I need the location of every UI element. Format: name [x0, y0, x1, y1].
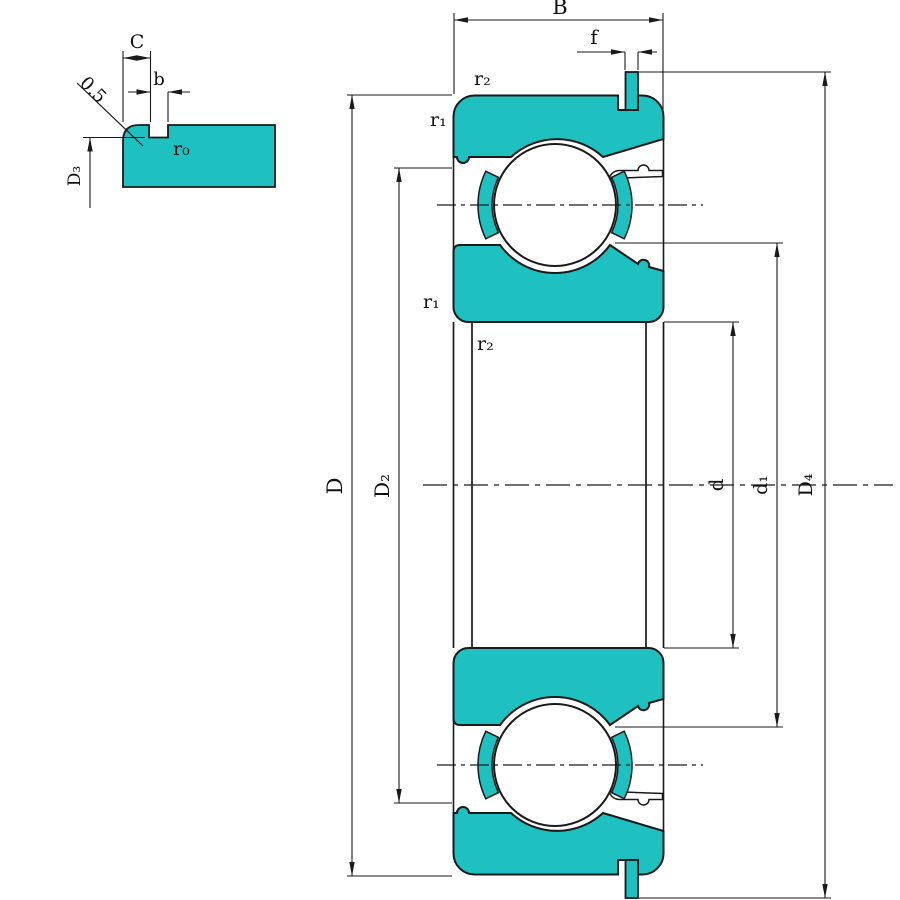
detail-part-section — [123, 125, 275, 187]
dim-f-label: f — [590, 25, 599, 49]
dim-D-label: D — [323, 478, 347, 495]
r2-bore-label: r₂ — [477, 333, 494, 355]
r1-mid-label: r₁ — [423, 291, 440, 313]
dim-b-label: b — [153, 69, 165, 90]
bearing-technical-drawing: 0.5 C b r₀ D₃ B — [0, 0, 900, 900]
r2-top-label: r₂ — [474, 68, 491, 90]
dim-d-label: d — [704, 478, 728, 491]
dim-D4-label: D₄ — [795, 473, 817, 496]
drawing-canvas: 0.5 C b r₀ D₃ B — [0, 0, 900, 900]
dim-D2-label: D₂ — [370, 474, 394, 498]
snap-ring-groove-detail-view: 0.5 C b r₀ D₃ — [65, 31, 275, 208]
lower-section — [454, 648, 664, 898]
dim-C-label: C — [130, 31, 145, 53]
radius-r0-label: r₀ — [173, 138, 190, 160]
r1-top-label: r₁ — [430, 109, 447, 131]
dim-D3-label: D₃ — [65, 166, 85, 186]
chamfer-label: 0.5 — [75, 73, 110, 108]
dim-B-label: B — [552, 0, 567, 19]
dim-d1-label: d₁ — [750, 475, 772, 495]
upper-section — [454, 72, 664, 322]
bearing-main-view: B f D D₂ d d₁ D₄ r₂ r₁ r₁ — [323, 0, 893, 898]
